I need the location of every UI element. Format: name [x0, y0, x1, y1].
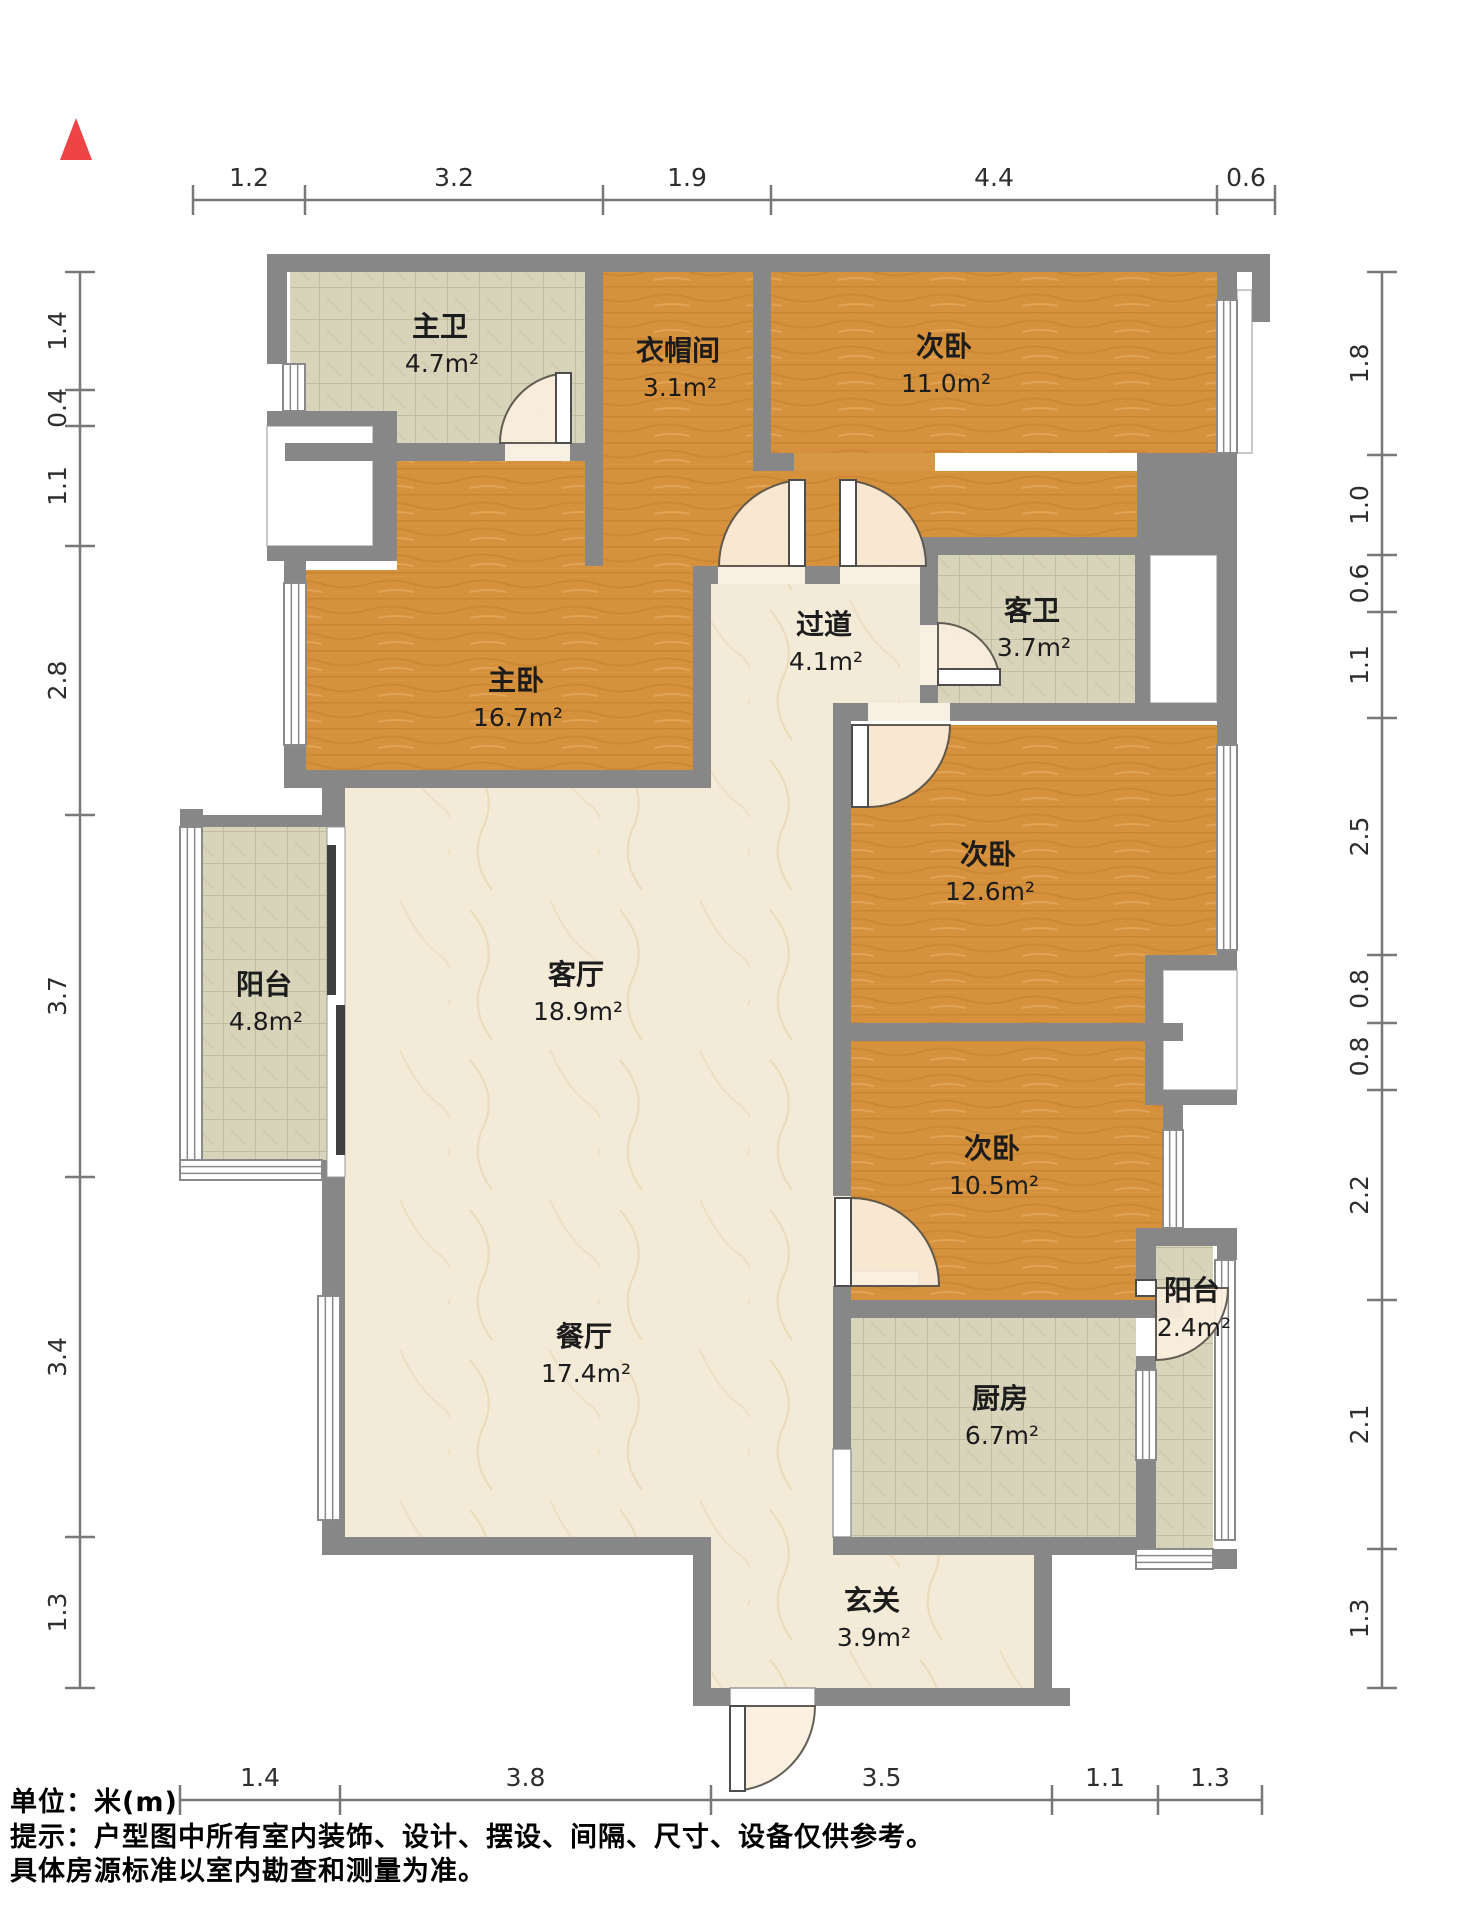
room-area-floor	[935, 471, 1137, 537]
wall	[1163, 1105, 1183, 1130]
wall	[373, 411, 397, 561]
room-label-name: 过道	[796, 608, 852, 641]
dim-value: 1.4	[43, 311, 72, 351]
window	[1217, 300, 1237, 453]
room-label-name: 阳台	[1164, 1274, 1220, 1307]
shaft-recess	[1150, 555, 1217, 703]
door-opening	[920, 625, 938, 685]
window	[284, 583, 306, 745]
door-leaf	[730, 1706, 745, 1791]
dim-value: 2.2	[1345, 1175, 1374, 1215]
room-label-name: 主卫	[412, 310, 468, 343]
wall	[1217, 1246, 1237, 1260]
door-leaf	[556, 373, 571, 443]
footer-notes: 单位：米(m) 提示：户型图中所有室内装饰、设计、摆设、间隔、尺寸、设备仅供参考…	[10, 1786, 1450, 1890]
room-label-area: 4.1m²	[789, 647, 863, 676]
dim-value: 1.0	[1345, 485, 1374, 525]
window	[1136, 1370, 1156, 1460]
dim-value: 0.8	[1345, 969, 1374, 1009]
dim-value: 3.2	[434, 163, 474, 192]
wall	[1136, 1356, 1156, 1370]
room-客厅-floor	[345, 788, 833, 1537]
room-label-area: 17.4m²	[541, 1359, 631, 1388]
wall	[1136, 1246, 1156, 1280]
dim-value: 0.8	[1345, 1037, 1374, 1077]
door-opening	[718, 566, 805, 584]
tip-line-2: 具体房源标准以室内勘查和测量为准。	[10, 1855, 1450, 1890]
room-主卧-floor	[397, 461, 693, 570]
wall	[851, 703, 868, 721]
shaft-recess	[1237, 290, 1252, 453]
door-opening	[840, 566, 925, 584]
dim-value: 1.9	[667, 163, 707, 192]
floorplan-page: 主卫4.7m²衣帽间3.1m²次卧11.0m²主卧16.7m²过道4.1m²客卫…	[0, 0, 1464, 1920]
dim-value: 3.7	[43, 976, 72, 1016]
wall	[693, 566, 711, 788]
window	[1163, 1130, 1183, 1228]
room-label-name: 衣帽间	[636, 334, 720, 367]
window	[180, 1160, 322, 1180]
unit-note: 单位：米(m)	[10, 1786, 1450, 1821]
dim-value: 1.2	[229, 163, 269, 192]
room-label-area: 18.9m²	[533, 997, 623, 1026]
dim-value: 3.4	[43, 1337, 72, 1377]
room-过道-floor	[711, 584, 920, 703]
wall	[322, 1537, 711, 1555]
door-opening	[868, 703, 950, 721]
room-label-area: 4.7m²	[405, 349, 479, 378]
dim-value: 2.1	[1345, 1405, 1374, 1445]
wall	[833, 1041, 851, 1196]
dim-value: 0.4	[43, 388, 72, 428]
window	[283, 364, 305, 411]
wall	[1034, 1555, 1052, 1688]
window	[1217, 745, 1237, 950]
door-leaf	[835, 1198, 851, 1286]
wall	[180, 815, 345, 827]
dim-value: 1.3	[43, 1593, 72, 1633]
wall	[585, 254, 603, 566]
dimension-right: 1.81.00.61.12.50.80.82.22.11.3	[1345, 272, 1397, 1688]
wall	[285, 443, 505, 461]
wall	[1136, 1228, 1237, 1246]
wall	[693, 1688, 730, 1706]
tip-line-1: 提示：户型图中所有室内装饰、设计、摆设、间隔、尺寸、设备仅供参考。	[10, 1821, 1450, 1856]
wall	[1135, 537, 1150, 721]
wall	[815, 1688, 1070, 1706]
door-opening	[505, 443, 570, 461]
room-label-name: 主卧	[488, 664, 544, 697]
wall	[1145, 955, 1163, 1105]
door-opening	[730, 1688, 815, 1706]
wall	[1217, 453, 1237, 745]
room-过道-floor	[711, 703, 833, 788]
sliding-door-panel	[336, 1005, 345, 1155]
door-leaf	[789, 480, 805, 566]
wall	[1252, 272, 1270, 322]
room-label-area: 11.0m²	[901, 369, 991, 398]
wall	[833, 1023, 1183, 1041]
door-opening	[833, 1449, 851, 1537]
room-label-area: 16.7m²	[473, 703, 563, 732]
wall	[284, 770, 711, 788]
dim-value: 1.3	[1345, 1599, 1374, 1639]
wall	[920, 685, 938, 703]
door-leaf	[840, 480, 856, 566]
wall	[833, 1318, 851, 1449]
wall	[1213, 1549, 1237, 1569]
wall	[570, 443, 585, 461]
room-label-name: 客卫	[1004, 594, 1060, 627]
wall	[950, 703, 1237, 721]
room-label-area: 3.9m²	[837, 1623, 911, 1652]
room-label-area: 3.1m²	[643, 373, 717, 402]
room-label-name: 次卧	[960, 838, 1016, 871]
room-label-area: 4.8m²	[229, 1007, 303, 1036]
room-label-name: 厨房	[972, 1382, 1028, 1415]
room-次卧-floor	[771, 272, 1217, 453]
wall	[833, 1300, 1183, 1318]
wall	[833, 1286, 851, 1300]
wall	[753, 254, 771, 453]
window	[318, 1296, 340, 1520]
north-indicator-icon	[60, 118, 92, 160]
dim-value: 0.6	[1345, 564, 1374, 604]
room-label-name: 次卧	[916, 330, 972, 363]
door-leaf	[938, 669, 1000, 685]
window	[1136, 1549, 1213, 1569]
dim-value: 4.4	[974, 163, 1014, 192]
room-label-name: 客厅	[548, 958, 604, 991]
wall	[833, 1537, 1156, 1555]
wall	[833, 703, 851, 1041]
wall	[693, 1537, 711, 1706]
door-leaf	[1136, 1280, 1156, 1296]
wall	[920, 537, 1137, 555]
door-leaf	[852, 725, 868, 807]
dim-value: 1.1	[1345, 645, 1374, 685]
wall	[805, 566, 840, 584]
room-label-name: 阳台	[236, 968, 292, 1001]
window	[180, 827, 202, 1160]
room-label-area: 10.5m²	[949, 1171, 1039, 1200]
room-label-area: 12.6m²	[945, 877, 1035, 906]
floorplan-drawing: 主卫4.7m²衣帽间3.1m²次卧11.0m²主卧16.7m²过道4.1m²客卫…	[0, 0, 1464, 1920]
wall	[267, 254, 287, 364]
door-opening	[794, 453, 935, 471]
dim-value: 2.8	[43, 661, 72, 701]
sliding-door-panel	[327, 845, 336, 995]
room-label-name: 餐厅	[556, 1320, 612, 1353]
dimension-top: 1.23.21.94.40.6	[193, 163, 1275, 215]
room-label-area: 3.7m²	[997, 633, 1071, 662]
room-label-name: 次卧	[964, 1132, 1020, 1165]
dimension-left: 1.40.41.12.83.73.41.3	[43, 272, 95, 1688]
dim-value: 0.6	[1226, 163, 1266, 192]
room-label-area: 6.7m²	[965, 1421, 1039, 1450]
wall	[1217, 272, 1237, 300]
wall	[1136, 1460, 1156, 1549]
dim-value: 1.8	[1345, 344, 1374, 384]
room-label-name: 玄关	[844, 1584, 900, 1617]
dim-value: 1.1	[43, 466, 72, 506]
room-label-area: 2.4m²	[1157, 1313, 1231, 1342]
wall	[753, 453, 794, 471]
dim-value: 2.5	[1345, 817, 1374, 857]
